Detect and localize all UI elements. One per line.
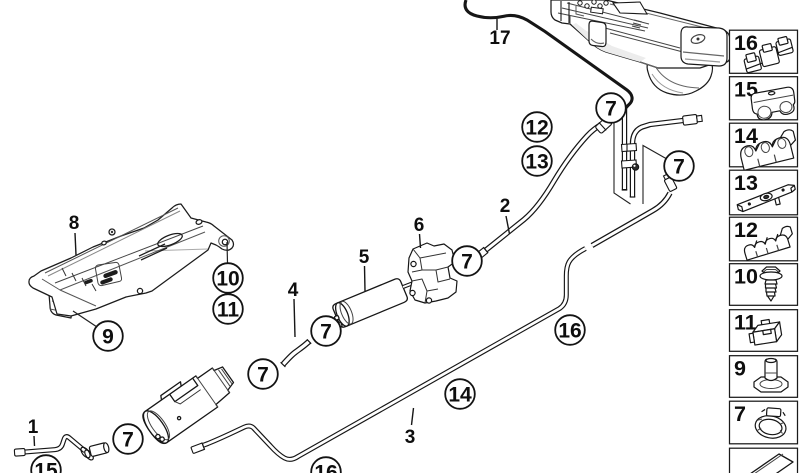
svg-text:10: 10 <box>734 265 758 289</box>
svg-text:6: 6 <box>414 215 425 236</box>
svg-text:16: 16 <box>314 462 337 473</box>
svg-text:7: 7 <box>605 98 617 121</box>
svg-text:14: 14 <box>734 124 758 148</box>
svg-text:16: 16 <box>558 320 581 343</box>
svg-text:2: 2 <box>500 196 511 217</box>
svg-text:12: 12 <box>525 117 548 140</box>
svg-text:12: 12 <box>734 218 758 242</box>
svg-text:7: 7 <box>734 402 746 426</box>
svg-text:14: 14 <box>448 384 472 407</box>
svg-text:5: 5 <box>359 247 370 268</box>
svg-text:1: 1 <box>28 417 39 438</box>
svg-text:10: 10 <box>216 268 239 291</box>
svg-text:3: 3 <box>405 427 416 448</box>
svg-text:15: 15 <box>34 460 58 473</box>
svg-text:7: 7 <box>257 364 269 387</box>
svg-text:17: 17 <box>489 28 510 49</box>
svg-text:7: 7 <box>461 251 473 274</box>
svg-text:9: 9 <box>102 326 114 349</box>
svg-text:13: 13 <box>734 171 758 195</box>
svg-text:9: 9 <box>734 357 746 381</box>
svg-text:8: 8 <box>69 213 80 234</box>
svg-text:7: 7 <box>320 321 332 344</box>
svg-text:7: 7 <box>122 429 134 452</box>
svg-text:7: 7 <box>673 156 685 179</box>
svg-text:4: 4 <box>288 280 299 301</box>
svg-text:13: 13 <box>525 151 548 174</box>
svg-text:16: 16 <box>734 31 758 55</box>
svg-text:11: 11 <box>217 299 240 322</box>
